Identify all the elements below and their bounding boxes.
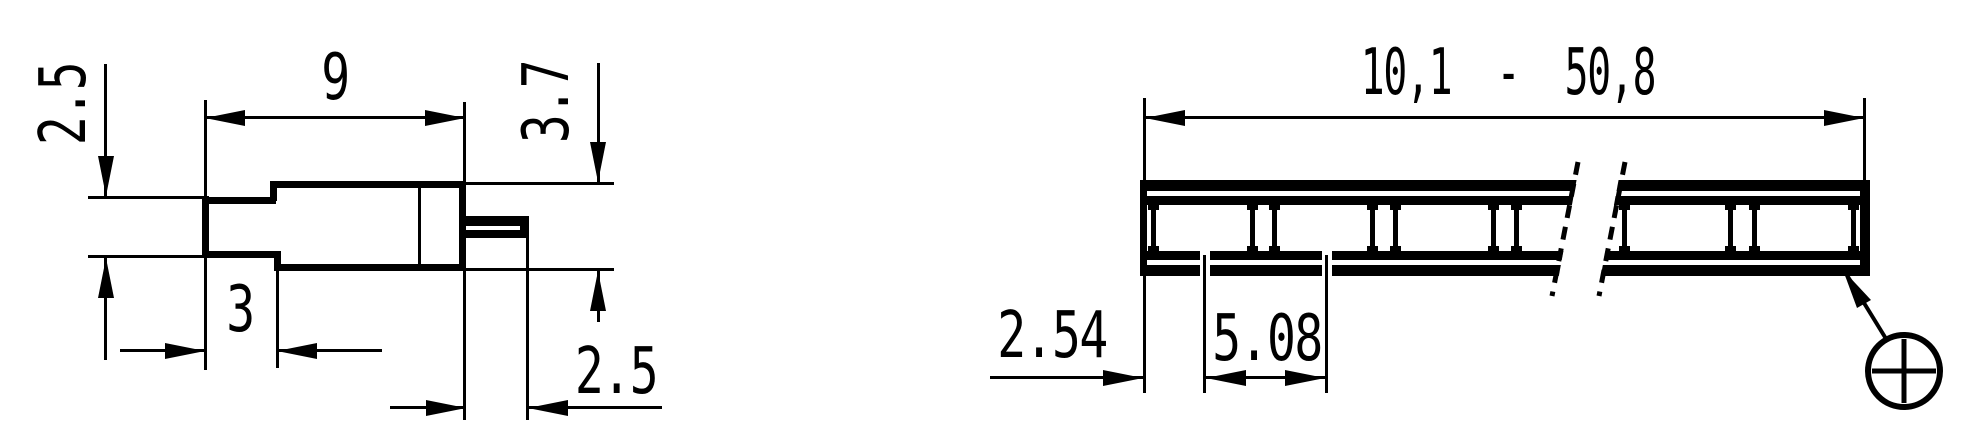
drawing-canvas — [0, 0, 1974, 438]
dim-label-pin-length: 2.5 — [575, 340, 657, 404]
break-symbol — [1552, 156, 1625, 302]
left-view-part-outline — [202, 181, 529, 271]
dim-label-end-pitch: 2.54 — [997, 304, 1107, 368]
position-symbol-icon — [1868, 335, 1940, 407]
dim-label-neck-length: 3 — [226, 278, 253, 342]
position-symbol-leader — [1843, 270, 1888, 342]
dim-label-body-height: 3.7 — [515, 61, 579, 143]
dim-label-body-length: 9 — [321, 46, 348, 110]
dim-label-pitch: 5.08 — [1212, 307, 1322, 371]
dim-label-total-length: 10,1 - 50,8 — [1361, 41, 1655, 105]
technical-drawing: 2.5 9 3.7 3 2.5 10,1 - 50,8 2.54 5.08 — [0, 0, 1974, 438]
left-view-extension-lines — [88, 100, 614, 420]
right-view-part-outline — [1140, 180, 1870, 276]
dim-label-neck-height: 2.5 — [32, 63, 96, 145]
